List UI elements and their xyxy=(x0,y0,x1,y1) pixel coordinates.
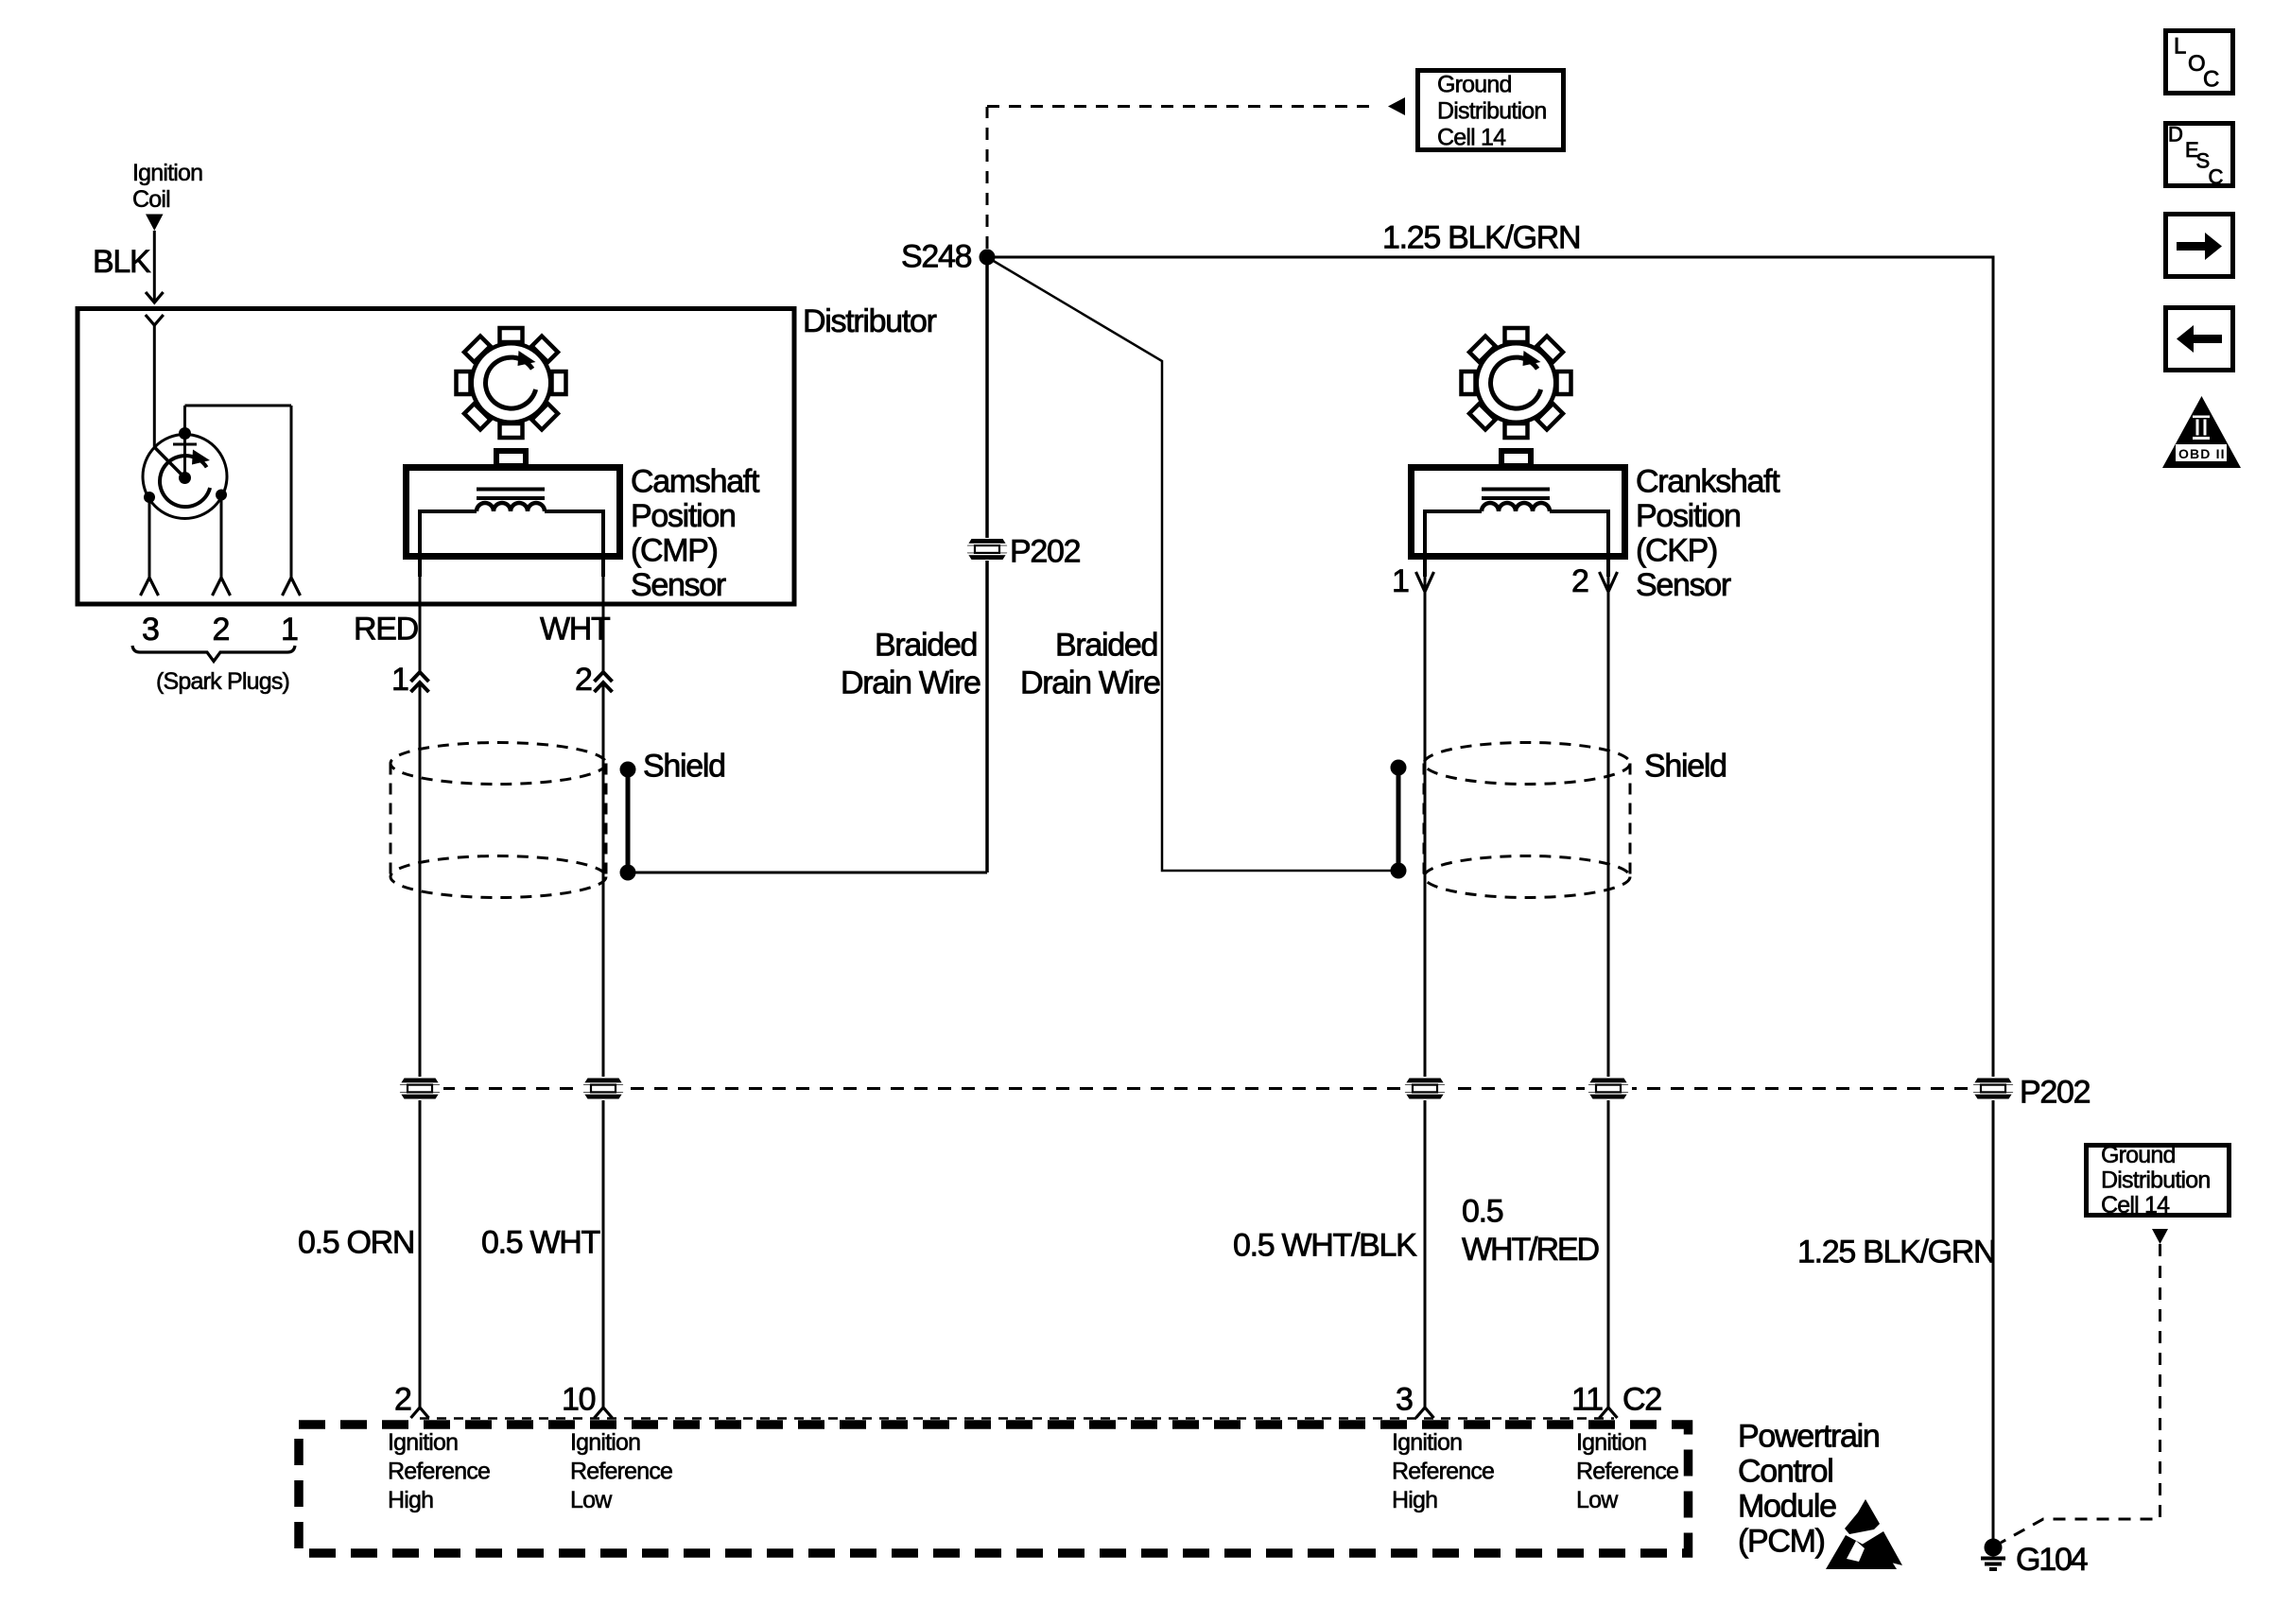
svg-text:0.5 WHT/BLK: 0.5 WHT/BLK xyxy=(1233,1227,1417,1263)
svg-text:(PCM): (PCM) xyxy=(1738,1523,1825,1559)
svg-text:0.5 WHT: 0.5 WHT xyxy=(481,1224,600,1260)
svg-text:Powertrain: Powertrain xyxy=(1738,1418,1880,1454)
svg-text:3: 3 xyxy=(142,612,159,648)
svg-text:WHT: WHT xyxy=(540,611,610,647)
svg-text:1: 1 xyxy=(391,662,408,698)
svg-text:D: D xyxy=(2168,123,2182,147)
svg-text:1.25 BLK/GRN: 1.25 BLK/GRN xyxy=(1382,219,1580,255)
svg-text:Distribution: Distribution xyxy=(2101,1167,2210,1194)
svg-text:2: 2 xyxy=(394,1381,411,1417)
svg-text:Position: Position xyxy=(631,498,736,534)
svg-text:1: 1 xyxy=(1392,563,1409,599)
svg-text:Sensor: Sensor xyxy=(1636,567,1731,603)
svg-text:Ignition: Ignition xyxy=(1576,1429,1646,1456)
svg-text:2: 2 xyxy=(575,662,592,698)
svg-text:S248: S248 xyxy=(901,238,972,274)
svg-text:2: 2 xyxy=(1571,563,1588,599)
svg-text:Reference: Reference xyxy=(1392,1458,1494,1484)
svg-text:Low: Low xyxy=(570,1487,613,1513)
svg-text:(CMP): (CMP) xyxy=(631,532,718,568)
svg-text:Low: Low xyxy=(1576,1487,1619,1513)
svg-text:Braided: Braided xyxy=(1055,627,1157,663)
svg-text:BLK: BLK xyxy=(93,244,151,280)
svg-text:Shield: Shield xyxy=(1644,748,1726,784)
svg-text:High: High xyxy=(388,1487,433,1513)
svg-text:Drain Wire: Drain Wire xyxy=(841,665,980,700)
svg-text:Cell 14: Cell 14 xyxy=(1437,124,1506,150)
svg-text:Distribution: Distribution xyxy=(1437,97,1546,124)
svg-text:Reference: Reference xyxy=(570,1458,672,1484)
svg-text:11: 11 xyxy=(1571,1381,1603,1417)
svg-text:S: S xyxy=(2196,149,2210,173)
svg-text:Control: Control xyxy=(1738,1453,1833,1489)
svg-text:Camshaft: Camshaft xyxy=(631,463,760,499)
svg-text:Ignition: Ignition xyxy=(1392,1429,1462,1456)
svg-text:Distributor: Distributor xyxy=(803,303,937,339)
svg-text:0.5 ORN: 0.5 ORN xyxy=(298,1224,414,1260)
svg-text:Module: Module xyxy=(1738,1488,1836,1524)
svg-text:3: 3 xyxy=(1396,1381,1413,1417)
svg-text:WHT/RED: WHT/RED xyxy=(1462,1232,1598,1268)
svg-text:P202: P202 xyxy=(2020,1074,2091,1110)
svg-text:C: C xyxy=(2203,67,2219,93)
svg-text:Drain Wire: Drain Wire xyxy=(1020,665,1160,700)
svg-text:0.5: 0.5 xyxy=(1462,1193,1503,1229)
svg-text:1.25 BLK/GRN: 1.25 BLK/GRN xyxy=(1797,1234,1995,1270)
svg-text:RED: RED xyxy=(354,611,418,647)
svg-text:(Spark Plugs): (Spark Plugs) xyxy=(156,668,289,695)
svg-text:Ground: Ground xyxy=(2101,1142,2176,1168)
svg-text:OBD II: OBD II xyxy=(2178,446,2224,461)
svg-text:Sensor: Sensor xyxy=(631,567,726,603)
svg-text:Reference: Reference xyxy=(388,1458,490,1484)
svg-text:Reference: Reference xyxy=(1576,1458,1678,1484)
svg-text:Crankshaft: Crankshaft xyxy=(1636,463,1780,499)
svg-text:P202: P202 xyxy=(1010,533,1081,569)
svg-text:C2: C2 xyxy=(1622,1381,1661,1417)
svg-text:Ignition: Ignition xyxy=(132,160,202,186)
svg-text:High: High xyxy=(1392,1487,1437,1513)
svg-text:L: L xyxy=(2174,34,2186,60)
svg-text:Coil: Coil xyxy=(132,186,170,213)
svg-text:Position: Position xyxy=(1636,498,1741,534)
svg-text:Ignition: Ignition xyxy=(570,1429,640,1456)
svg-text:Cell 14: Cell 14 xyxy=(2101,1192,2170,1218)
svg-text:Shield: Shield xyxy=(643,748,725,784)
svg-text:10: 10 xyxy=(562,1381,596,1417)
svg-text:C: C xyxy=(2209,165,2224,189)
svg-text:Ground: Ground xyxy=(1437,71,1512,97)
svg-text:(CKP): (CKP) xyxy=(1636,532,1717,568)
svg-text:2: 2 xyxy=(213,612,230,648)
svg-text:G104: G104 xyxy=(2016,1542,2088,1578)
svg-text:Braided: Braided xyxy=(875,627,977,663)
svg-text:1: 1 xyxy=(281,612,298,648)
svg-text:Ignition: Ignition xyxy=(388,1429,458,1456)
